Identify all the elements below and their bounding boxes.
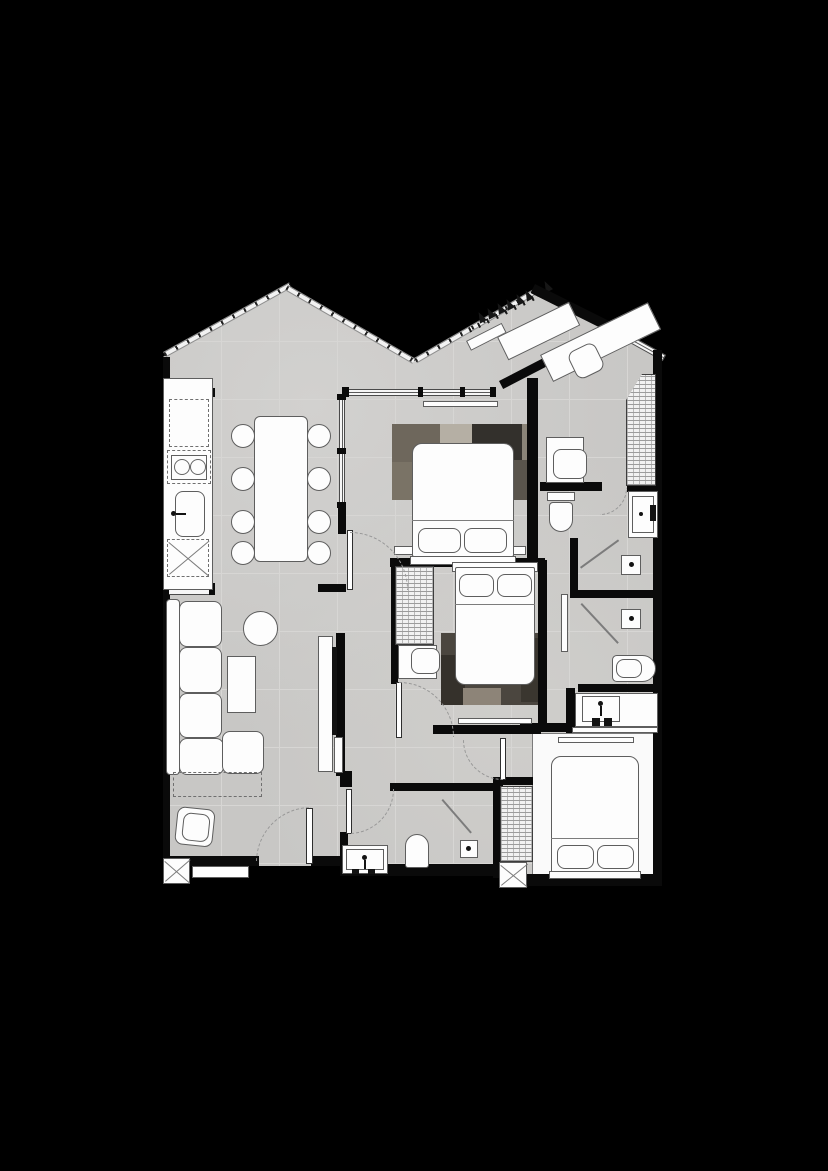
shower-head-dot: [629, 562, 634, 567]
dining-chair: [307, 510, 331, 534]
bedroom3-shelf: [558, 737, 634, 743]
faucet-stem: [364, 860, 366, 869]
glass-post: [337, 502, 346, 508]
pillow: [418, 528, 461, 553]
hall-shelf: [561, 594, 568, 652]
toilet-seat: [616, 659, 642, 678]
wall-corridor-south: [390, 783, 498, 791]
pillow: [497, 574, 532, 597]
shower-head-dot: [466, 846, 471, 851]
dining-chair: [307, 541, 331, 565]
wall-bath2-south: [578, 684, 658, 692]
pillow: [459, 574, 494, 597]
glass-post: [418, 387, 423, 397]
bedroom3-wardrobe-hatch: [500, 786, 533, 862]
tv-wall-panel: [334, 737, 343, 773]
glass-post: [337, 448, 346, 454]
dining-chair: [231, 510, 255, 534]
faucet-fitting: [604, 718, 612, 726]
burner: [190, 459, 206, 475]
wall-bedroom1-east: [527, 378, 538, 565]
tv-console: [318, 636, 333, 772]
toilet-bowl: [405, 834, 429, 868]
faucet-fitting: [592, 718, 600, 726]
dining-chair: [231, 467, 255, 491]
faucet-fitting: [352, 869, 359, 874]
sofa-back: [166, 599, 180, 775]
glass-post: [337, 394, 346, 400]
sofa-seat: [179, 647, 222, 693]
vanity-counter-edge: [572, 727, 658, 733]
bedroom2-shelf: [458, 718, 532, 724]
dining-chair: [231, 424, 255, 448]
faucet-fitting: [368, 869, 375, 874]
wall-bath-divider: [570, 590, 658, 598]
blanket-line: [551, 838, 639, 839]
floor-plan-canvas: [0, 0, 828, 1171]
pillow: [597, 845, 634, 869]
faucet-fitting: [650, 505, 656, 521]
tv: [332, 647, 337, 735]
bedroom3-bed-foot: [549, 871, 641, 879]
wall-bedroom2-east: [538, 560, 547, 725]
bedroom2-rug-patch: [463, 688, 501, 705]
dining-table: [254, 416, 308, 562]
fridge: [169, 399, 209, 447]
dining-chair: [307, 424, 331, 448]
wall-walkin-south: [540, 482, 602, 491]
entry-bench: [192, 866, 249, 878]
bedroom1-wall-tv: [423, 401, 498, 407]
sofa-seat: [179, 693, 222, 738]
faucet-dot: [639, 512, 643, 516]
blanket-line: [455, 604, 535, 605]
sofa-seat: [179, 601, 222, 647]
armchair-seat: [181, 812, 211, 843]
dining-chair: [231, 541, 255, 565]
faucet-stem: [600, 706, 602, 716]
toilet-tank: [547, 492, 575, 501]
glass-post: [490, 387, 496, 397]
wall-bath1-west: [570, 538, 578, 598]
walkin-chair: [553, 449, 587, 479]
round-side-table: [243, 611, 278, 646]
pillow: [557, 845, 594, 869]
wall-corner: [338, 584, 346, 592]
wall-bedroom1-west: [338, 508, 346, 534]
sofa-seat: [179, 738, 224, 775]
shower-head-dot: [629, 616, 634, 621]
toilet-bowl: [549, 502, 573, 532]
coffee-table: [227, 656, 256, 713]
blanket-line: [412, 520, 514, 521]
burner: [174, 459, 190, 475]
entry-cabinet-outline: [173, 772, 262, 797]
bedroom1-rug-patch: [392, 462, 414, 500]
bedroom2-chair: [411, 648, 440, 674]
pillow: [464, 528, 507, 553]
faucet-dot: [598, 701, 603, 706]
glass-post: [460, 387, 465, 397]
faucet-stem: [176, 513, 186, 515]
dining-chair: [307, 467, 331, 491]
sofa-seat: [222, 731, 264, 774]
